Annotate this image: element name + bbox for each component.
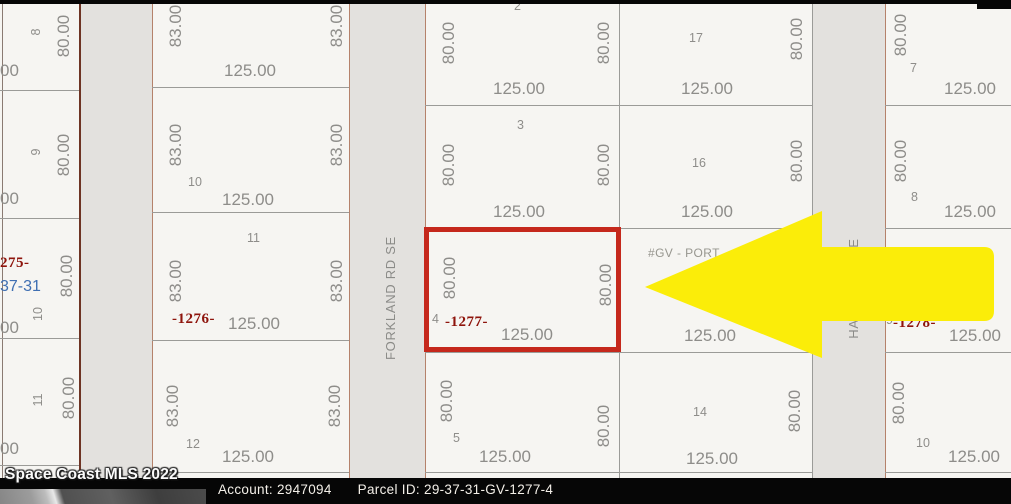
lot-number: 8 <box>911 191 918 204</box>
lot-number: 9 <box>30 144 43 160</box>
dimension-label: 00 <box>0 190 19 208</box>
parcel-id-value: 29-37-31-GV-1277-4 <box>424 482 553 497</box>
lot-line <box>425 472 619 473</box>
lot-number: 10 <box>916 437 930 450</box>
lot-number: 17 <box>689 32 703 45</box>
lot-number: 7 <box>910 62 917 75</box>
dimension-label: 83.00 <box>328 0 346 53</box>
dimension-label: 125.00 <box>681 203 733 221</box>
lot-line <box>152 87 349 88</box>
dimension-label: 00 <box>0 319 19 337</box>
dimension-label: 80.00 <box>890 376 908 430</box>
dimension-label: 125.00 <box>222 448 274 466</box>
boundary-line <box>812 4 813 478</box>
dimension-label: 125.00 <box>949 327 1001 345</box>
parcel-id-label: -1276- <box>172 312 215 328</box>
lot-line <box>0 90 79 91</box>
dimension-label: 80.00 <box>58 249 76 303</box>
section-id-label: 37-31 <box>0 279 41 296</box>
dimension-label: 125.00 <box>479 448 531 466</box>
parcel-id-label: 275- <box>0 256 30 272</box>
dimension-label: 80.00 <box>788 134 806 188</box>
highlighted-parcel-box <box>424 227 621 352</box>
lot-line <box>0 338 79 339</box>
lot-line <box>885 472 1011 473</box>
account-label: Account: <box>218 482 273 497</box>
dimension-label: 00 <box>0 440 19 458</box>
lot-number: 11 <box>32 392 45 408</box>
dimension-label: 80.00 <box>595 399 613 453</box>
lot-line <box>885 228 1011 229</box>
lot-line <box>152 212 349 213</box>
dimension-label: 80.00 <box>440 138 458 192</box>
dimension-label: 80.00 <box>595 16 613 70</box>
mls-watermark: Space Coast MLS 2022 <box>5 466 178 484</box>
dimension-label: 125.00 <box>684 327 736 345</box>
plat-note: #GV - PORT <box>648 247 720 260</box>
road-name-label: FORKLAND RD SE <box>384 250 398 360</box>
boundary-line <box>349 4 350 478</box>
dimension-label: 125.00 <box>493 203 545 221</box>
dimension-label: 125.00 <box>686 450 738 468</box>
dimension-label: 125.00 <box>228 315 280 333</box>
lot-number: 16 <box>692 157 706 170</box>
lot-number: 14 <box>693 406 707 419</box>
dimension-label: 80.00 <box>892 134 910 188</box>
dimension-label: 80.00 <box>595 138 613 192</box>
lot-line <box>619 352 812 353</box>
photo-thumbnail-fragment <box>0 489 206 504</box>
dimension-label: 00 <box>0 62 19 80</box>
dimension-label: 80.00 <box>438 374 456 428</box>
dimension-label: 83.00 <box>167 118 185 172</box>
road-name-label: HA <box>847 317 861 341</box>
lot-number: 8 <box>30 24 43 40</box>
dimension-label: 125.00 <box>948 448 1000 466</box>
dimension-label: 80.00 <box>786 384 804 438</box>
dimension-label: 83.00 <box>326 379 344 433</box>
dimension-label: 83.00 <box>164 379 182 433</box>
dimension-label: 125.00 <box>944 80 996 98</box>
account-info: Account: 2947094Parcel ID: 29-37-31-GV-1… <box>218 482 553 497</box>
lot-number: 10 <box>188 176 202 189</box>
lot-line <box>425 105 619 106</box>
dimension-label: 80.00 <box>788 12 806 66</box>
parcel-id-label: -1278- <box>893 316 936 332</box>
dimension-label: 125.00 <box>224 62 276 80</box>
lot-line <box>619 472 812 473</box>
road-strip <box>81 4 152 478</box>
lot-number: 12 <box>186 438 200 451</box>
lot-number: 2 <box>514 0 521 13</box>
lot-number: 3 <box>517 119 524 132</box>
mls-map-screen: 880.0000980.0000275-37-3180.0010001180.0… <box>0 0 1011 504</box>
boundary-line <box>152 4 153 478</box>
dimension-label: 80.00 <box>60 371 78 425</box>
dimension-label: 83.00 <box>328 254 346 308</box>
lot-line <box>152 472 349 473</box>
lot-number: 11 <box>247 232 260 245</box>
dimension-label: 125.00 <box>681 80 733 98</box>
lot-number: 9 <box>886 314 893 327</box>
road-name-label: E <box>847 237 861 249</box>
lot-line <box>0 218 79 219</box>
lot-line <box>152 340 349 341</box>
dimension-label: 125.00 <box>944 203 996 221</box>
lot-line <box>619 228 812 229</box>
lot-number: 10 <box>32 306 45 322</box>
dimension-label: 80.00 <box>892 8 910 62</box>
lot-line <box>619 105 812 106</box>
dimension-label: 125.00 <box>222 191 274 209</box>
lot-number: 5 <box>453 432 460 445</box>
dimension-label: 80.00 <box>440 16 458 70</box>
parcel-id-label: Parcel ID: <box>358 482 420 497</box>
lot-line <box>885 105 1011 106</box>
lot-line <box>425 352 619 353</box>
dimension-label: 83.00 <box>167 254 185 308</box>
boundary-line <box>79 4 81 478</box>
dimension-label: 80.00 <box>55 128 73 182</box>
dimension-label: 83.00 <box>167 0 185 53</box>
account-value: 2947094 <box>277 482 332 497</box>
dimension-label: 125.00 <box>493 80 545 98</box>
lot-line <box>885 352 1011 353</box>
dimension-label: 83.00 <box>328 118 346 172</box>
boundary-line <box>885 4 886 478</box>
dimension-label: 80.00 <box>55 9 73 63</box>
